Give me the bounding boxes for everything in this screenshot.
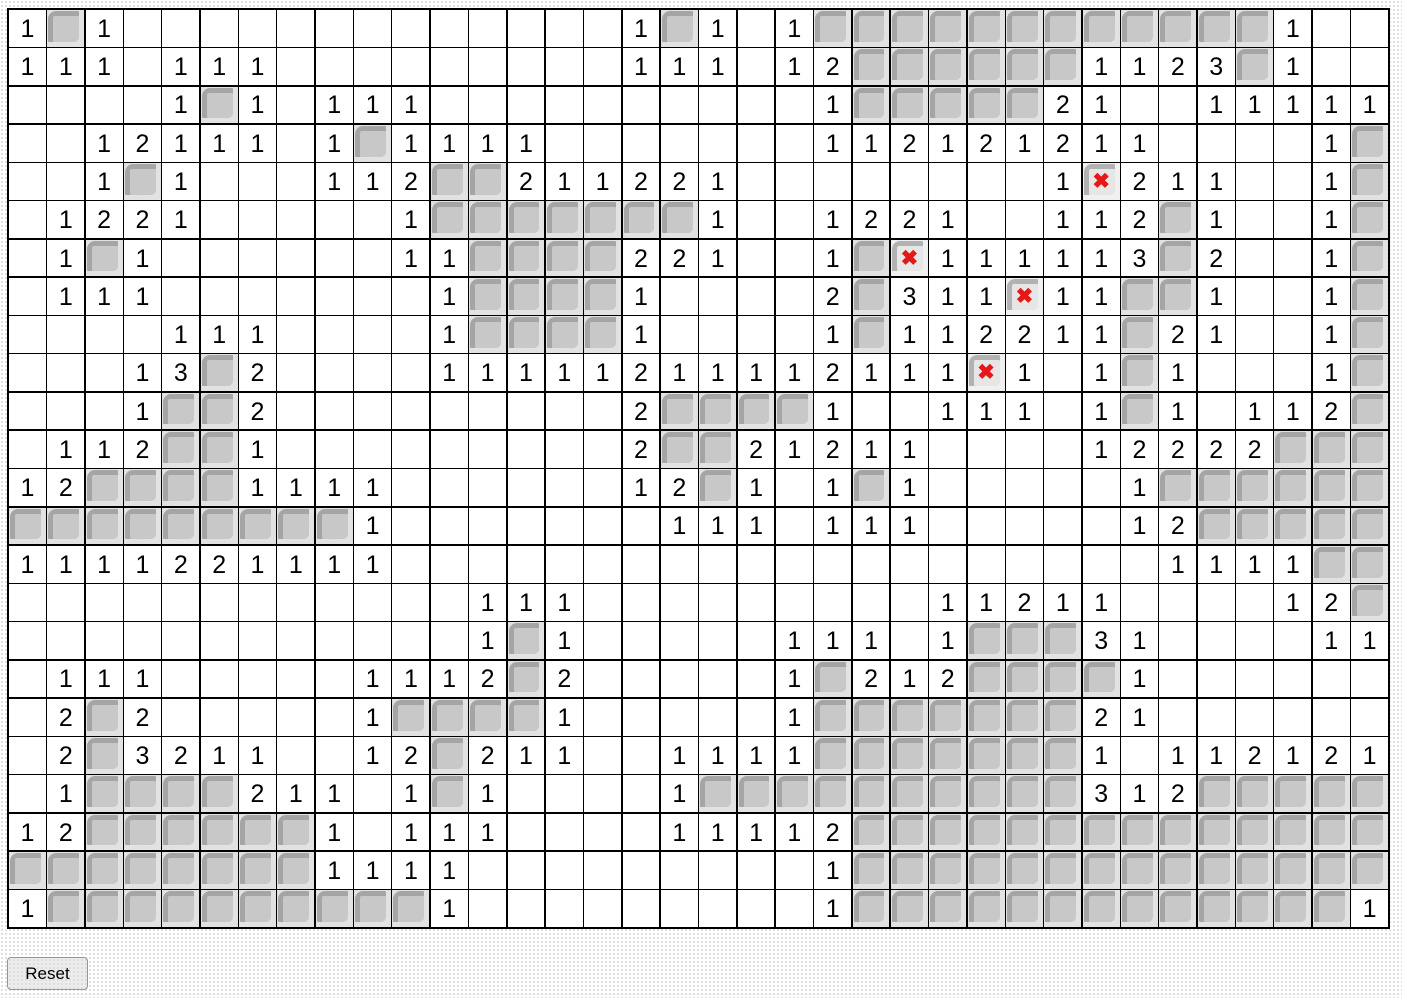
covered-tile[interactable] xyxy=(929,814,966,851)
covered-tile[interactable] xyxy=(469,201,506,238)
covered-tile[interactable] xyxy=(661,10,698,47)
covered-tile[interactable] xyxy=(124,814,161,851)
cell-number: 1 xyxy=(826,323,840,348)
covered-tile[interactable] xyxy=(201,890,238,927)
covered-tile[interactable] xyxy=(929,852,966,889)
covered-tile[interactable] xyxy=(546,278,583,315)
covered-tile[interactable] xyxy=(1313,852,1350,889)
revealed-empty-cell xyxy=(546,508,583,545)
covered-tile[interactable] xyxy=(201,508,238,545)
covered-tile[interactable] xyxy=(661,201,698,238)
covered-tile[interactable] xyxy=(929,10,966,47)
covered-tile[interactable] xyxy=(86,852,123,889)
covered-tile[interactable] xyxy=(853,890,890,927)
revealed-number-cell: 1 xyxy=(316,469,353,506)
covered-tile[interactable] xyxy=(162,431,199,468)
covered-tile[interactable] xyxy=(1236,814,1273,851)
revealed-number-cell: 2 xyxy=(162,546,199,583)
covered-tile[interactable] xyxy=(968,814,1005,851)
revealed-number-cell: 1 xyxy=(392,852,429,889)
covered-tile[interactable] xyxy=(776,393,813,430)
covered-tile[interactable] xyxy=(968,737,1005,774)
covered-tile[interactable] xyxy=(1159,890,1196,927)
covered-tile[interactable] xyxy=(1198,10,1235,47)
revealed-empty-cell xyxy=(9,699,46,736)
revealed-number-cell: 1 xyxy=(1351,622,1388,659)
revealed-empty-cell xyxy=(277,354,314,391)
covered-tile[interactable] xyxy=(1351,814,1388,851)
covered-tile[interactable] xyxy=(891,814,928,851)
covered-tile[interactable] xyxy=(584,278,621,315)
covered-tile[interactable] xyxy=(239,508,276,545)
covered-tile[interactable] xyxy=(354,890,391,927)
covered-tile[interactable] xyxy=(584,240,621,277)
revealed-number-cell: 1 xyxy=(431,240,468,277)
covered-tile[interactable] xyxy=(1313,890,1350,927)
covered-tile[interactable] xyxy=(891,699,928,736)
covered-tile[interactable] xyxy=(853,48,890,85)
cell xyxy=(162,852,199,889)
covered-tile[interactable] xyxy=(201,87,238,124)
covered-tile[interactable] xyxy=(277,508,314,545)
flagged-tile[interactable]: ✖ xyxy=(891,240,928,277)
revealed-number-cell: 2 xyxy=(469,737,506,774)
covered-tile[interactable] xyxy=(1351,431,1388,468)
covered-tile[interactable] xyxy=(162,393,199,430)
covered-tile[interactable] xyxy=(1044,699,1081,736)
covered-tile[interactable] xyxy=(1083,10,1120,47)
cell-number: 1 xyxy=(826,476,840,501)
covered-tile[interactable] xyxy=(508,661,545,698)
covered-tile[interactable] xyxy=(469,240,506,277)
revealed-number-cell: 1 xyxy=(1198,316,1235,353)
covered-tile[interactable] xyxy=(1044,661,1081,698)
covered-tile[interactable] xyxy=(738,393,775,430)
covered-tile[interactable] xyxy=(124,163,161,200)
covered-tile[interactable] xyxy=(1006,48,1043,85)
covered-tile[interactable] xyxy=(162,852,199,889)
cell-number: 1 xyxy=(1017,247,1031,272)
covered-tile[interactable] xyxy=(392,699,429,736)
covered-tile[interactable] xyxy=(814,661,851,698)
cell xyxy=(1351,775,1388,812)
revealed-empty-cell xyxy=(1274,240,1311,277)
covered-tile[interactable] xyxy=(853,87,890,124)
covered-tile[interactable] xyxy=(1006,890,1043,927)
covered-tile[interactable] xyxy=(277,890,314,927)
covered-tile[interactable] xyxy=(853,699,890,736)
covered-tile[interactable] xyxy=(929,890,966,927)
covered-tile[interactable] xyxy=(853,316,890,353)
cell-number: 1 xyxy=(902,514,916,539)
covered-tile[interactable] xyxy=(968,775,1005,812)
cell-number: 1 xyxy=(442,132,456,157)
covered-tile[interactable] xyxy=(1198,890,1235,927)
covered-tile[interactable] xyxy=(968,890,1005,927)
covered-tile[interactable] xyxy=(239,890,276,927)
covered-tile[interactable] xyxy=(431,775,468,812)
covered-tile[interactable] xyxy=(201,431,238,468)
covered-tile[interactable] xyxy=(1121,393,1158,430)
covered-tile[interactable] xyxy=(1083,661,1120,698)
covered-tile[interactable] xyxy=(1351,240,1388,277)
covered-tile[interactable] xyxy=(162,775,199,812)
revealed-empty-cell xyxy=(392,278,429,315)
cell-number: 2 xyxy=(251,400,265,425)
covered-tile[interactable] xyxy=(124,775,161,812)
covered-tile[interactable] xyxy=(1121,354,1158,391)
covered-tile[interactable] xyxy=(1006,87,1043,124)
covered-tile[interactable] xyxy=(1044,48,1081,85)
cell-number: 1 xyxy=(902,361,916,386)
covered-tile[interactable] xyxy=(1351,775,1388,812)
covered-tile[interactable] xyxy=(86,469,123,506)
covered-tile[interactable] xyxy=(1313,546,1350,583)
revealed-empty-cell xyxy=(316,201,353,238)
covered-tile[interactable] xyxy=(354,125,391,162)
covered-tile[interactable] xyxy=(239,852,276,889)
covered-tile[interactable] xyxy=(891,890,928,927)
covered-tile[interactable] xyxy=(968,10,1005,47)
revealed-number-cell: 1 xyxy=(277,546,314,583)
covered-tile[interactable] xyxy=(1006,775,1043,812)
covered-tile[interactable] xyxy=(316,508,353,545)
revealed-number-cell: 1 xyxy=(392,814,429,851)
covered-tile[interactable] xyxy=(929,775,966,812)
covered-tile[interactable] xyxy=(431,201,468,238)
covered-tile[interactable] xyxy=(277,814,314,851)
covered-tile[interactable] xyxy=(469,278,506,315)
covered-tile[interactable] xyxy=(86,737,123,774)
cell-number: 2 xyxy=(136,706,150,731)
covered-tile[interactable] xyxy=(1351,469,1388,506)
revealed-empty-cell xyxy=(316,316,353,353)
covered-tile[interactable] xyxy=(1083,852,1120,889)
covered-tile[interactable] xyxy=(968,661,1005,698)
covered-tile[interactable] xyxy=(1198,775,1235,812)
covered-tile[interactable] xyxy=(1006,699,1043,736)
covered-tile[interactable] xyxy=(661,393,698,430)
covered-tile[interactable] xyxy=(508,316,545,353)
covered-tile[interactable] xyxy=(9,852,46,889)
covered-tile[interactable] xyxy=(891,48,928,85)
cell xyxy=(1121,10,1158,47)
covered-tile[interactable] xyxy=(1351,852,1388,889)
covered-tile[interactable] xyxy=(929,699,966,736)
covered-tile[interactable] xyxy=(1159,201,1196,238)
covered-tile[interactable] xyxy=(853,852,890,889)
covered-tile[interactable] xyxy=(1121,814,1158,851)
covered-tile[interactable] xyxy=(201,852,238,889)
covered-tile[interactable] xyxy=(1313,469,1350,506)
covered-tile[interactable] xyxy=(546,316,583,353)
covered-tile[interactable] xyxy=(86,508,123,545)
covered-tile[interactable] xyxy=(738,775,775,812)
covered-tile[interactable] xyxy=(1121,278,1158,315)
covered-tile[interactable] xyxy=(1121,10,1158,47)
covered-tile[interactable] xyxy=(1351,546,1388,583)
covered-tile[interactable] xyxy=(584,316,621,353)
covered-tile[interactable] xyxy=(853,278,890,315)
covered-tile[interactable] xyxy=(1198,508,1235,545)
covered-tile[interactable] xyxy=(853,737,890,774)
covered-tile[interactable] xyxy=(431,699,468,736)
covered-tile[interactable] xyxy=(1006,814,1043,851)
revealed-empty-cell xyxy=(623,546,660,583)
covered-tile[interactable] xyxy=(1274,431,1311,468)
covered-tile[interactable] xyxy=(1274,852,1311,889)
covered-tile[interactable] xyxy=(47,508,84,545)
covered-tile[interactable] xyxy=(891,737,928,774)
covered-tile[interactable] xyxy=(124,852,161,889)
cell-number: 2 xyxy=(59,821,73,846)
revealed-empty-cell xyxy=(776,201,813,238)
covered-tile[interactable] xyxy=(546,201,583,238)
covered-tile[interactable] xyxy=(699,469,736,506)
cell xyxy=(661,393,698,430)
covered-tile[interactable] xyxy=(316,890,353,927)
covered-tile[interactable] xyxy=(929,48,966,85)
revealed-empty-cell xyxy=(1121,87,1158,124)
cell-number: 2 xyxy=(902,208,916,233)
covered-tile[interactable] xyxy=(1351,354,1388,391)
cell-number: 1 xyxy=(1248,400,1262,425)
covered-tile[interactable] xyxy=(891,10,928,47)
covered-tile[interactable] xyxy=(699,775,736,812)
revealed-number-cell: 2 xyxy=(86,201,123,238)
revealed-number-cell: 1 xyxy=(1198,737,1235,774)
covered-tile[interactable] xyxy=(1274,508,1311,545)
covered-tile[interactable] xyxy=(968,48,1005,85)
covered-tile[interactable] xyxy=(47,10,84,47)
covered-tile[interactable] xyxy=(1274,814,1311,851)
cell xyxy=(1198,10,1235,47)
revealed-number-cell: 1 xyxy=(699,354,736,391)
revealed-empty-cell xyxy=(469,546,506,583)
covered-tile[interactable] xyxy=(1006,852,1043,889)
covered-tile[interactable] xyxy=(1044,775,1081,812)
covered-tile[interactable] xyxy=(853,240,890,277)
covered-tile[interactable] xyxy=(1236,775,1273,812)
covered-tile[interactable] xyxy=(1159,10,1196,47)
covered-tile[interactable] xyxy=(1274,469,1311,506)
covered-tile[interactable] xyxy=(1159,852,1196,889)
covered-tile[interactable] xyxy=(1198,814,1235,851)
revealed-number-cell: 1 xyxy=(1274,584,1311,621)
revealed-number-cell: 1 xyxy=(9,890,46,927)
cell xyxy=(738,775,775,812)
covered-tile[interactable] xyxy=(968,852,1005,889)
covered-tile[interactable] xyxy=(776,775,813,812)
covered-tile[interactable] xyxy=(508,240,545,277)
covered-tile[interactable] xyxy=(1313,814,1350,851)
covered-tile[interactable] xyxy=(1236,469,1273,506)
covered-tile[interactable] xyxy=(201,469,238,506)
covered-tile[interactable] xyxy=(1159,278,1196,315)
covered-tile[interactable] xyxy=(853,814,890,851)
flagged-tile[interactable]: ✖ xyxy=(1006,278,1043,315)
covered-tile[interactable] xyxy=(891,852,928,889)
covered-tile[interactable] xyxy=(9,508,46,545)
covered-tile[interactable] xyxy=(508,278,545,315)
covered-tile[interactable] xyxy=(1236,508,1273,545)
revealed-empty-cell xyxy=(162,278,199,315)
covered-tile[interactable] xyxy=(469,163,506,200)
covered-tile[interactable] xyxy=(124,508,161,545)
revealed-empty-cell xyxy=(546,469,583,506)
revealed-empty-cell xyxy=(1274,699,1311,736)
covered-tile[interactable] xyxy=(1044,890,1081,927)
covered-tile[interactable] xyxy=(814,10,851,47)
covered-tile[interactable] xyxy=(239,814,276,851)
covered-tile[interactable] xyxy=(86,890,123,927)
covered-tile[interactable] xyxy=(546,240,583,277)
covered-tile[interactable] xyxy=(431,163,468,200)
covered-tile[interactable] xyxy=(1351,201,1388,238)
cell-number: 2 xyxy=(634,247,648,272)
covered-tile[interactable] xyxy=(814,699,851,736)
covered-tile[interactable] xyxy=(1044,814,1081,851)
covered-tile[interactable] xyxy=(1159,240,1196,277)
covered-tile[interactable] xyxy=(929,737,966,774)
cell-number: 1 xyxy=(251,553,265,578)
covered-tile[interactable] xyxy=(86,775,123,812)
covered-tile[interactable] xyxy=(1121,890,1158,927)
revealed-number-cell: 1 xyxy=(508,125,545,162)
covered-tile[interactable] xyxy=(853,775,890,812)
covered-tile[interactable] xyxy=(1044,622,1081,659)
covered-tile[interactable] xyxy=(853,10,890,47)
covered-tile[interactable] xyxy=(162,890,199,927)
covered-tile[interactable] xyxy=(124,469,161,506)
covered-tile[interactable] xyxy=(1083,890,1120,927)
cell-number: 1 xyxy=(1094,93,1108,118)
covered-tile[interactable] xyxy=(1083,814,1120,851)
covered-tile[interactable] xyxy=(1198,469,1235,506)
covered-tile[interactable] xyxy=(1351,278,1388,315)
covered-tile[interactable] xyxy=(86,814,123,851)
covered-tile[interactable] xyxy=(1121,316,1158,353)
cell-number: 1 xyxy=(711,514,725,539)
covered-tile[interactable] xyxy=(508,622,545,659)
covered-tile[interactable] xyxy=(1006,622,1043,659)
cell xyxy=(469,163,506,200)
covered-tile[interactable] xyxy=(1351,316,1388,353)
covered-tile[interactable] xyxy=(891,775,928,812)
covered-tile[interactable] xyxy=(891,87,928,124)
covered-tile[interactable] xyxy=(1044,10,1081,47)
covered-tile[interactable] xyxy=(201,354,238,391)
covered-tile[interactable] xyxy=(699,431,736,468)
covered-tile[interactable] xyxy=(469,316,506,353)
covered-tile[interactable] xyxy=(1274,890,1311,927)
covered-tile[interactable] xyxy=(1274,775,1311,812)
covered-tile[interactable] xyxy=(1006,10,1043,47)
covered-tile[interactable] xyxy=(1236,852,1273,889)
cell-number: 1 xyxy=(327,170,341,195)
covered-tile[interactable] xyxy=(162,469,199,506)
covered-tile[interactable] xyxy=(1236,48,1273,85)
flagged-tile[interactable]: ✖ xyxy=(968,354,1005,391)
revealed-number-cell: 2 xyxy=(546,661,583,698)
flagged-tile[interactable]: ✖ xyxy=(1083,163,1120,200)
covered-tile[interactable] xyxy=(1044,737,1081,774)
covered-tile[interactable] xyxy=(1236,890,1273,927)
covered-tile[interactable] xyxy=(86,240,123,277)
covered-tile[interactable] xyxy=(661,431,698,468)
revealed-empty-cell xyxy=(1159,699,1196,736)
covered-tile[interactable] xyxy=(814,737,851,774)
covered-tile[interactable] xyxy=(1313,775,1350,812)
covered-tile[interactable] xyxy=(1006,737,1043,774)
covered-tile[interactable] xyxy=(1351,584,1388,621)
covered-tile[interactable] xyxy=(431,737,468,774)
covered-tile[interactable] xyxy=(1351,163,1388,200)
cell-number: 1 xyxy=(1056,208,1070,233)
revealed-empty-cell xyxy=(239,240,276,277)
covered-tile[interactable] xyxy=(508,201,545,238)
covered-tile[interactable] xyxy=(853,469,890,506)
cell xyxy=(1044,890,1081,927)
covered-tile[interactable] xyxy=(968,699,1005,736)
cell-number: 2 xyxy=(864,667,878,692)
covered-tile[interactable] xyxy=(1121,852,1158,889)
revealed-empty-cell xyxy=(469,508,506,545)
covered-tile[interactable] xyxy=(1313,508,1350,545)
covered-tile[interactable] xyxy=(277,852,314,889)
covered-tile[interactable] xyxy=(47,852,84,889)
covered-tile[interactable] xyxy=(162,814,199,851)
covered-tile[interactable] xyxy=(1236,10,1273,47)
covered-tile[interactable] xyxy=(699,393,736,430)
reset-button[interactable]: Reset xyxy=(7,957,88,990)
covered-tile[interactable] xyxy=(968,622,1005,659)
covered-tile[interactable] xyxy=(201,775,238,812)
covered-tile[interactable] xyxy=(1351,508,1388,545)
covered-tile[interactable] xyxy=(201,814,238,851)
covered-tile[interactable] xyxy=(86,699,123,736)
covered-tile[interactable] xyxy=(124,890,161,927)
covered-tile[interactable] xyxy=(968,87,1005,124)
revealed-number-cell: 1 xyxy=(431,354,468,391)
covered-tile[interactable] xyxy=(1044,852,1081,889)
covered-tile[interactable] xyxy=(814,775,851,812)
covered-tile[interactable] xyxy=(47,890,84,927)
covered-tile[interactable] xyxy=(1313,431,1350,468)
covered-tile[interactable] xyxy=(508,699,545,736)
covered-tile[interactable] xyxy=(469,699,506,736)
covered-tile[interactable] xyxy=(929,87,966,124)
covered-tile[interactable] xyxy=(392,890,429,927)
covered-tile[interactable] xyxy=(584,201,621,238)
cell-number: 1 xyxy=(97,285,111,310)
revealed-number-cell: 1 xyxy=(1006,393,1043,430)
cell-number: 3 xyxy=(174,361,188,386)
covered-tile[interactable] xyxy=(201,393,238,430)
covered-tile[interactable] xyxy=(162,508,199,545)
covered-tile[interactable] xyxy=(623,201,660,238)
covered-tile[interactable] xyxy=(1198,852,1235,889)
covered-tile[interactable] xyxy=(1159,814,1196,851)
covered-tile[interactable] xyxy=(1159,469,1196,506)
revealed-number-cell: 1 xyxy=(814,125,851,162)
revealed-number-cell: 1 xyxy=(316,546,353,583)
revealed-empty-cell xyxy=(814,584,851,621)
covered-tile[interactable] xyxy=(1351,393,1388,430)
covered-tile[interactable] xyxy=(1351,125,1388,162)
cell-number: 1 xyxy=(212,744,226,769)
covered-tile[interactable] xyxy=(1006,661,1043,698)
